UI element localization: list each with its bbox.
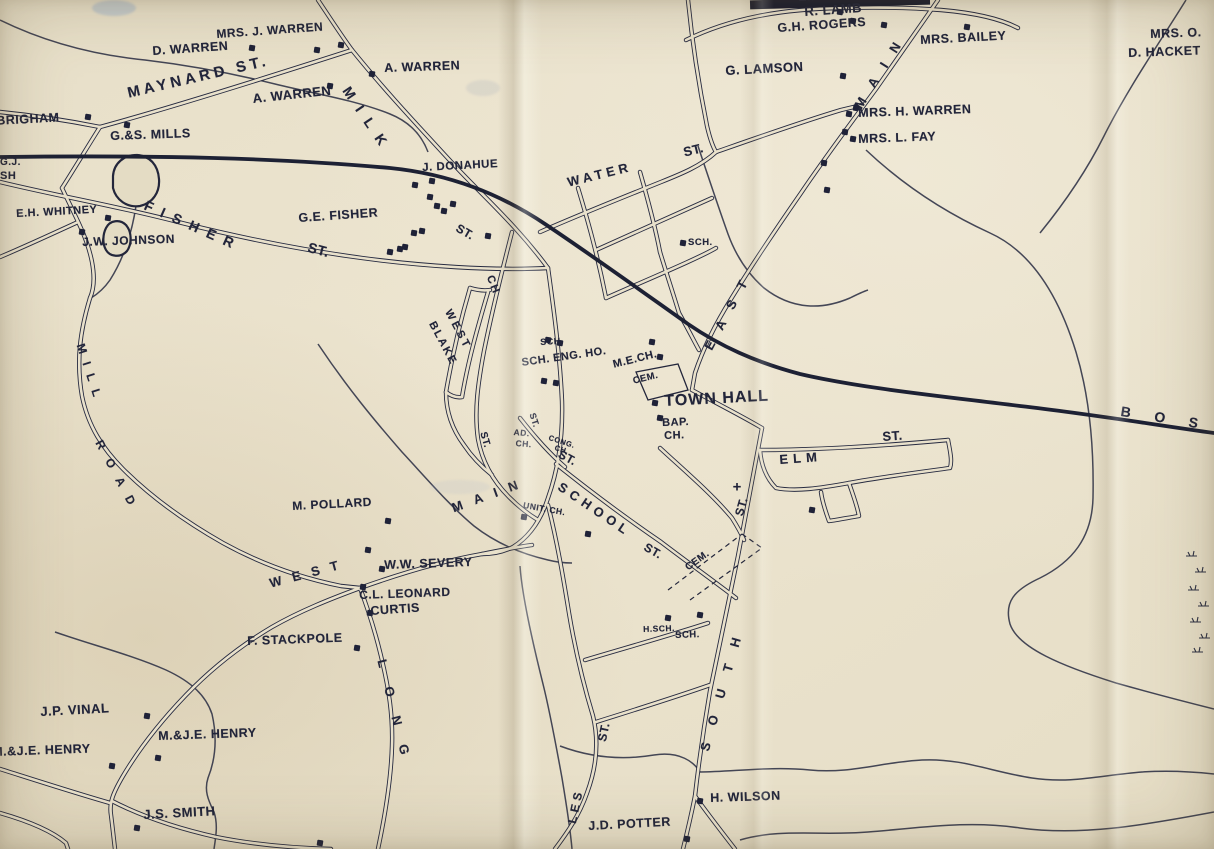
map-label-ww-severy: W.W. SEVERY	[384, 556, 473, 572]
house-marker	[327, 83, 334, 90]
house-marker	[680, 240, 687, 247]
house-marker	[657, 354, 664, 361]
map-label-elm-st: ST.	[882, 429, 903, 443]
house-marker	[840, 73, 847, 80]
house-marker	[485, 233, 492, 240]
map-label-sch-water: SCH.	[688, 238, 713, 248]
house-marker	[821, 160, 828, 167]
map-label-sch-south: SCH.	[675, 630, 700, 640]
map-label-ad-ch: CH.	[515, 439, 532, 449]
house-marker	[402, 244, 409, 251]
house-marker	[842, 129, 849, 136]
map-label-bap-ch: CH.	[664, 430, 685, 442]
house-marker	[853, 105, 860, 112]
house-marker	[338, 42, 345, 49]
house-marker	[354, 645, 361, 652]
house-marker	[697, 798, 704, 805]
map-label-cl-leonard: C.L. LEONARD	[359, 586, 451, 601]
map-label-mrs-o-clipped: MRS. O.	[1150, 26, 1202, 40]
house-marker	[684, 836, 691, 843]
house-marker	[809, 507, 816, 514]
map-label-jp-vinal: J.P. VINAL	[40, 701, 110, 718]
house-marker	[441, 208, 448, 215]
map-canvas: MRS. J. WARREND. WARRENA. WARRENA. WARRE…	[0, 0, 1214, 849]
house-marker	[429, 178, 436, 185]
house-marker	[109, 763, 116, 770]
house-marker	[657, 415, 664, 422]
house-marker	[124, 122, 131, 129]
house-marker	[365, 547, 372, 554]
house-marker	[155, 755, 162, 762]
house-marker	[427, 194, 434, 201]
map-label-g-lamson: G. LAMSON	[725, 60, 804, 77]
house-marker	[360, 584, 367, 591]
map-label-gs-mills: G.&S. MILLS	[110, 127, 191, 142]
map-label-mrs-l-fay: MRS. L. FAY	[858, 130, 936, 145]
cemetery-dashed-boundary	[668, 534, 762, 600]
house-marker	[412, 182, 419, 189]
house-marker	[369, 71, 376, 78]
map-label-gj-partial: G.J.	[0, 158, 21, 168]
map-label-sh-partial: SH	[0, 171, 16, 182]
house-marker	[419, 228, 426, 235]
church-cross-icon: +	[733, 480, 742, 495]
house-marker	[144, 713, 151, 720]
house-marker	[541, 378, 548, 385]
house-marker	[249, 45, 256, 52]
house-marker	[649, 339, 656, 346]
house-marker	[585, 531, 592, 538]
house-marker	[450, 201, 457, 208]
map-label-f-stackpole: F. STACKPOLE	[247, 632, 343, 648]
house-marker	[964, 24, 971, 31]
house-marker	[652, 400, 659, 407]
house-marker	[434, 203, 441, 210]
house-marker	[317, 840, 324, 847]
swamp-marsh-symbols	[1186, 551, 1210, 652]
house-marker	[881, 22, 888, 29]
house-marker	[697, 612, 704, 619]
house-marker	[850, 136, 857, 143]
map-label-h-wilson: H. WILSON	[710, 790, 781, 805]
house-marker	[134, 825, 141, 832]
house-marker	[850, 18, 857, 25]
house-marker	[387, 249, 394, 256]
house-marker	[79, 229, 86, 236]
map-label-jw-johnson: J.W. JOHNSON	[82, 233, 175, 248]
map-label-h-sch: H.SCH.	[643, 624, 675, 634]
house-marker	[85, 114, 92, 121]
house-marker	[846, 111, 853, 118]
house-marker	[824, 187, 831, 194]
map-label-elm: ELM	[779, 450, 822, 466]
house-marker	[553, 380, 560, 387]
house-marker	[665, 615, 672, 622]
map-label-bap: BAP.	[662, 417, 689, 429]
house-marker	[521, 514, 528, 521]
house-marker	[379, 566, 386, 573]
map-label-js-smith: J.S. SMITH	[143, 804, 216, 821]
house-marker	[385, 518, 392, 525]
house-marker	[105, 215, 112, 222]
house-marker	[411, 230, 418, 237]
house-marker	[367, 610, 374, 617]
map-label-ruggles-st-part: ST.	[596, 722, 612, 743]
house-marker	[557, 340, 564, 347]
map-label-ad: AD.	[513, 428, 530, 438]
house-marker	[545, 337, 552, 344]
house-marker	[837, 9, 844, 16]
map-label-a-warren-upper: A. WARREN	[384, 59, 460, 74]
house-marker	[314, 47, 321, 54]
map-label-d-hacke-clipped: D. HACKET	[1128, 44, 1201, 59]
